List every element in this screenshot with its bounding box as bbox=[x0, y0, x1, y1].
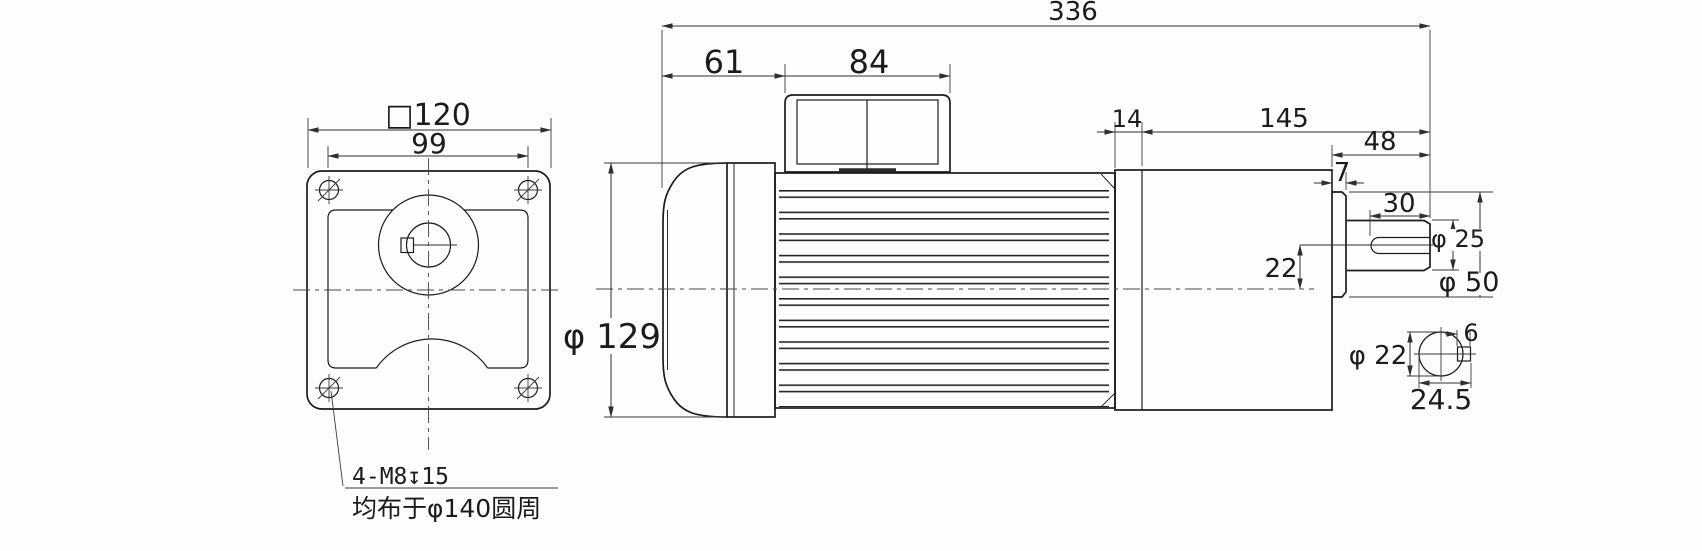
dim-shaft-extension: 48 bbox=[1363, 127, 1396, 157]
dim-gearbox-length: 145 bbox=[1259, 104, 1309, 134]
bolt-hole-bottom-left bbox=[315, 374, 343, 402]
bolt-hole-bottom-right bbox=[514, 374, 542, 402]
dim-boss-diameter: φ 50 bbox=[1439, 267, 1500, 298]
dim-shaft-axis-offset: 22 bbox=[1264, 254, 1297, 284]
dim-key-width: 6 bbox=[1463, 319, 1478, 347]
gearbox-housing bbox=[1115, 170, 1332, 410]
dim-shaft-diameter: φ 25 bbox=[1431, 225, 1485, 253]
flange-inner-contour-right bbox=[464, 210, 528, 368]
bolt-hole-top-left bbox=[315, 176, 343, 204]
flange-inner-contour-left bbox=[328, 210, 393, 368]
flange-body-arc bbox=[376, 339, 487, 368]
note-bolt-circle: 均布于φ140圆周 bbox=[352, 494, 541, 523]
side-view bbox=[596, 95, 1450, 417]
dim-bolt-spacing: 99 bbox=[411, 127, 447, 160]
note-thread-spec: 4-M8↧15 bbox=[352, 464, 449, 490]
rear-cap-dome bbox=[663, 163, 727, 417]
bolt-hole-top-right bbox=[514, 176, 542, 204]
dim-overall-length: 336 bbox=[1048, 0, 1098, 27]
terminal-box bbox=[785, 95, 950, 172]
dim-motor-diameter: φ 129 bbox=[563, 317, 661, 357]
note-leader-line bbox=[331, 391, 343, 486]
dim-adapter-width: 14 bbox=[1112, 105, 1143, 133]
front-view bbox=[293, 158, 563, 488]
dim-width-across-key: 24.5 bbox=[1410, 383, 1472, 416]
engineering-drawing-canvas: 336 61 84 □120 99 φ 129 14 145 48 7 30 2… bbox=[0, 0, 1702, 551]
dim-rear-cap-length: 61 bbox=[704, 43, 745, 81]
dim-keyway-length: 30 bbox=[1382, 189, 1415, 219]
dim-boss-width: 7 bbox=[1334, 158, 1351, 188]
dim-terminal-box-width: 84 bbox=[849, 43, 890, 81]
cooling-fins bbox=[779, 190, 1109, 407]
dim-section-diameter: φ 22 bbox=[1349, 341, 1408, 371]
body-chamfer-top bbox=[1101, 174, 1115, 189]
gearmotor-drawing: 336 61 84 □120 99 φ 129 14 145 48 7 30 2… bbox=[0, 0, 1702, 551]
